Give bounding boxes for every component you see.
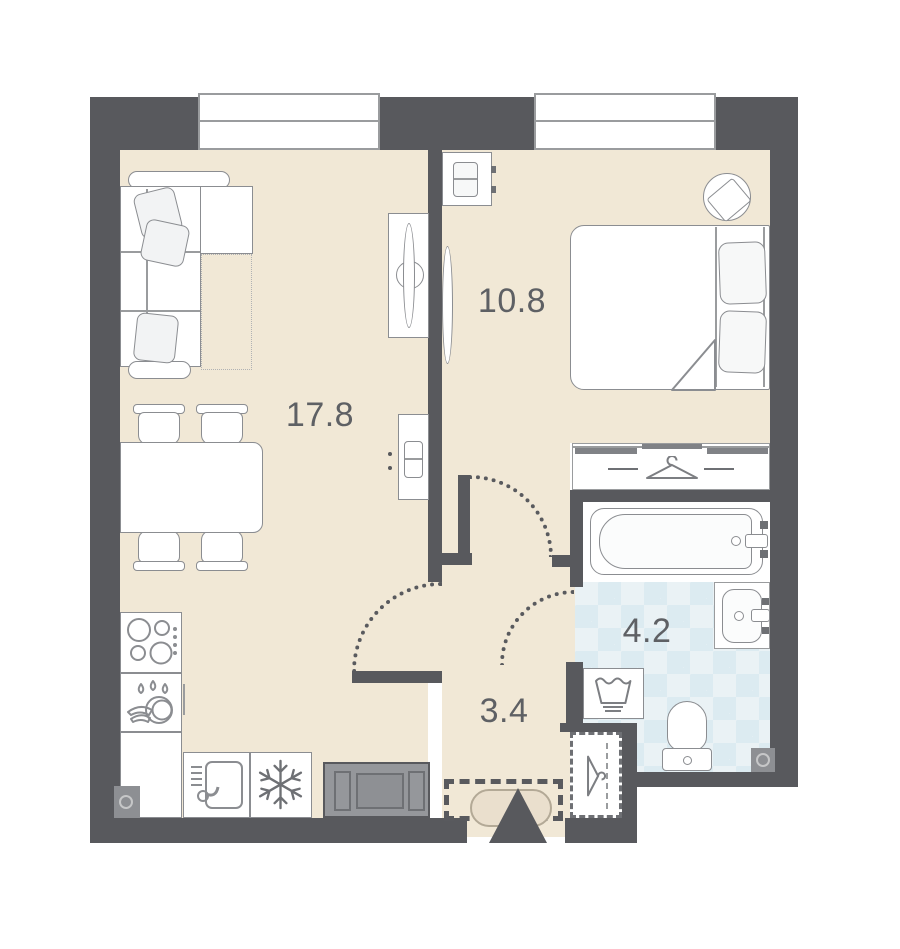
wall-bath-west-lower bbox=[566, 662, 583, 732]
washbasin-faucet bbox=[751, 609, 770, 622]
entrance-arrow bbox=[489, 788, 547, 843]
coat-closet bbox=[570, 732, 622, 818]
chair-bottom-1-seat bbox=[138, 530, 180, 563]
chair-bottom-2-seat bbox=[201, 530, 243, 563]
washing-machine bbox=[583, 668, 644, 719]
sofa-armrest-bottom bbox=[128, 361, 191, 379]
bed-pillow-2 bbox=[718, 310, 767, 374]
nightstand-icon-line bbox=[454, 178, 477, 180]
floor-plan: 17.8 10.8 4.2 3.4 bbox=[0, 0, 900, 949]
wall-closet-top bbox=[560, 723, 637, 732]
window-living bbox=[198, 93, 380, 150]
wardrobe-dash-left bbox=[608, 468, 638, 470]
bedroom-area-label: 10.8 bbox=[452, 284, 572, 318]
hanger-icon bbox=[641, 456, 703, 482]
kitchen-handle-line bbox=[183, 684, 185, 715]
dish-rack-cabinet bbox=[120, 673, 182, 732]
window-bedroom-sill-line bbox=[536, 120, 714, 122]
sofa-foldout-dotted bbox=[201, 254, 252, 370]
bathtub-faucet-nub-1 bbox=[760, 521, 768, 529]
wall-left bbox=[90, 97, 120, 843]
sofa-seat-line-2 bbox=[121, 310, 200, 312]
bathtub-drain bbox=[731, 536, 741, 546]
coat-hanger-icon bbox=[584, 752, 606, 800]
kitchen-sink-cabinet bbox=[183, 752, 250, 818]
bathtub-inner bbox=[599, 514, 752, 569]
wardrobe-door-seg-2 bbox=[642, 444, 702, 449]
nightstand bbox=[442, 152, 492, 206]
toilet-button bbox=[683, 756, 692, 765]
gray-cabinet bbox=[323, 762, 430, 818]
sofa-pillow-2 bbox=[139, 218, 191, 268]
chair-top-2-seat bbox=[201, 412, 243, 445]
sideboard-dot-2 bbox=[388, 466, 392, 470]
tv-screen bbox=[403, 223, 415, 328]
bathroom-vent-shaft bbox=[751, 748, 775, 772]
sideboard-icon-line bbox=[405, 458, 422, 460]
wall-partition-living-bedroom bbox=[428, 150, 442, 582]
chair-top-1-seat bbox=[138, 412, 180, 445]
kitchen-sink-icon bbox=[184, 753, 248, 816]
washbasin-drain bbox=[734, 611, 744, 621]
dish-rack-icon bbox=[121, 674, 180, 730]
window-living-sill-line bbox=[200, 120, 378, 122]
fridge bbox=[250, 752, 312, 818]
cooktop bbox=[120, 612, 182, 673]
toilet-bowl bbox=[667, 701, 707, 751]
nightstand-icon bbox=[453, 162, 478, 197]
cooktop-burners-icon bbox=[121, 613, 180, 671]
laundry-tub-icon bbox=[584, 669, 642, 717]
living-room-area-label: 17.8 bbox=[260, 398, 380, 432]
sofa-pillow-3 bbox=[133, 312, 180, 364]
kitchen-vent-shaft bbox=[114, 786, 140, 818]
washbasin-nub-1 bbox=[762, 598, 769, 605]
bathroom-vent-circle bbox=[756, 753, 770, 767]
sideboard-icon bbox=[404, 441, 423, 478]
bed-pillow-1 bbox=[718, 241, 767, 305]
wall-bath-door-foot bbox=[552, 555, 583, 567]
wall-entry-block bbox=[565, 818, 637, 843]
chair-bottom-1-back bbox=[133, 561, 185, 571]
kitchen-vent-circle bbox=[119, 795, 133, 809]
bathtub-faucet-nub-2 bbox=[760, 550, 768, 558]
wall-kitchen-stub bbox=[352, 671, 442, 683]
nightstand-nub-1 bbox=[491, 166, 496, 173]
wall-right bbox=[770, 97, 798, 787]
wardrobe-door-seg-3 bbox=[707, 448, 768, 454]
gray-cabinet-right-bar bbox=[408, 771, 425, 811]
coat-closet-centerline bbox=[606, 743, 608, 809]
sofa-chaise bbox=[200, 186, 253, 254]
bathtub-faucet bbox=[745, 534, 768, 548]
gray-cabinet-mid-panel bbox=[356, 773, 404, 809]
wall-hall-stub-v bbox=[458, 475, 470, 565]
dining-table bbox=[120, 442, 263, 533]
wardrobe-dash-right bbox=[704, 468, 734, 470]
sideboard-dot-1 bbox=[388, 452, 392, 456]
nightstand-nub-2 bbox=[491, 186, 496, 193]
bathroom-area-label: 4.2 bbox=[597, 614, 697, 648]
wall-wardrobe-bath bbox=[570, 490, 770, 502]
gray-cabinet-left-bar bbox=[334, 771, 351, 811]
wall-bottom-left bbox=[90, 818, 467, 843]
wardrobe-door-seg-1 bbox=[575, 448, 637, 454]
window-bedroom bbox=[534, 93, 716, 150]
snowflake-icon bbox=[251, 753, 310, 816]
bed-blanket-fold bbox=[669, 337, 719, 393]
wall-bath-west-upper bbox=[570, 493, 583, 587]
hallway-area-label: 3.4 bbox=[454, 694, 554, 728]
chair-bottom-2-back bbox=[196, 561, 248, 571]
washbasin-nub-2 bbox=[762, 627, 769, 634]
sliding-wardrobe bbox=[572, 443, 770, 490]
